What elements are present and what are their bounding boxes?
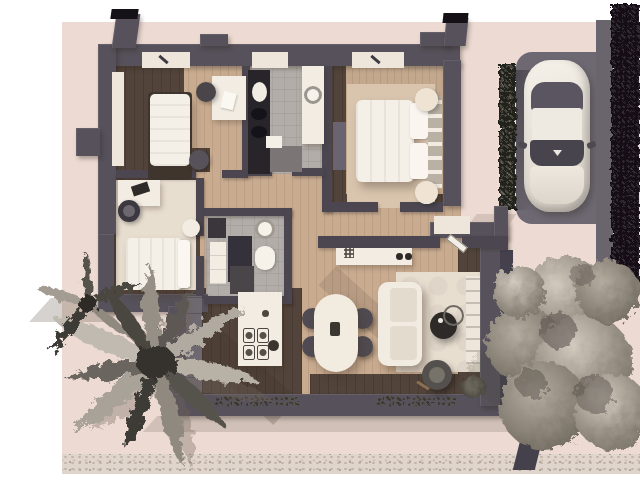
- chimney-left-cap: [110, 9, 138, 19]
- bidet-bathroom-1: [251, 126, 267, 138]
- coffee-table-glass: [443, 305, 464, 326]
- credenza-plant: [344, 248, 354, 258]
- bed-duvet-master: [356, 100, 414, 182]
- pillow-master-2: [410, 143, 428, 179]
- sofa-cushion-1: [390, 288, 417, 322]
- bed-duvet-bedroom-1: [150, 94, 190, 166]
- wardrobe-master: [333, 122, 346, 170]
- side-table-bedroom-2: [182, 219, 200, 237]
- wall-master-right: [443, 60, 461, 206]
- toilet-bathroom-1: [251, 108, 267, 120]
- coffee-table-decor: [438, 318, 443, 323]
- wall-left-buttress: [76, 128, 100, 156]
- desk-chair-bedroom-1: [196, 82, 216, 102]
- basin-counter-bathroom-1: [302, 66, 324, 144]
- floor-plan-scene: [0, 0, 640, 498]
- car-hood: [530, 166, 584, 204]
- round-basin: [304, 86, 322, 104]
- wall-master-bottom-b: [400, 202, 443, 212]
- wall-top-step-left: [200, 34, 228, 46]
- dining-table-decor: [330, 322, 340, 336]
- shower-bathroom-1: [270, 146, 302, 172]
- wall-living-top-a: [318, 236, 440, 248]
- palm-tree: [0, 252, 298, 498]
- wardrobe-niche-bedroom-1: [112, 72, 124, 166]
- window-sill-bathroom-1: [252, 52, 288, 68]
- sink-bathroom-1: [252, 82, 267, 102]
- wall-bath2-top: [204, 208, 292, 216]
- wall-bed1-bottom-b: [222, 170, 248, 178]
- bath-mat: [266, 136, 282, 148]
- window-planter: [376, 396, 456, 406]
- chimney-left: [112, 14, 141, 48]
- car-roof: [532, 108, 582, 142]
- hedge-strip: [499, 64, 516, 210]
- cabinet-dark-bathroom-2: [208, 218, 226, 238]
- chimney-right-cap: [442, 13, 468, 23]
- entry-closet: [434, 216, 470, 234]
- armchair-seat: [429, 367, 445, 383]
- pouf-master-bottom: [415, 181, 438, 204]
- wall-master-bottom-a: [324, 202, 378, 212]
- floor-dark-living-bottom: [310, 374, 482, 394]
- basin-bathroom-2: [255, 219, 275, 239]
- pouf-master-top: [415, 88, 438, 111]
- sofa-cushion-2: [390, 326, 417, 360]
- pouf-bedroom-1: [189, 150, 209, 170]
- credenza-bowl: [396, 253, 403, 260]
- credenza-bowl: [405, 253, 412, 260]
- shrub-tree: [462, 234, 640, 470]
- office-chair-seat: [123, 205, 135, 217]
